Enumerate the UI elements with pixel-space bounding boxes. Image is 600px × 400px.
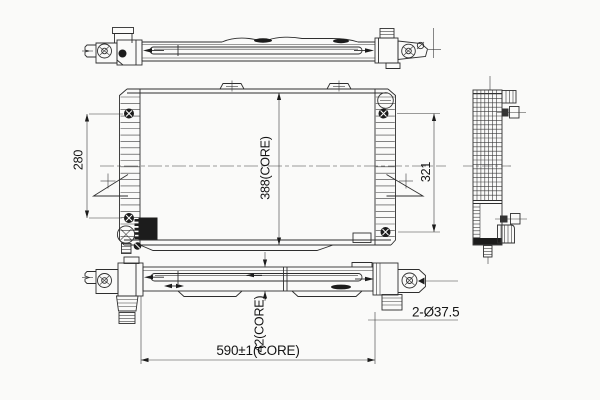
bottom-core-slot bbox=[151, 274, 362, 282]
dim-label-388-core: 388(CORE) bbox=[259, 136, 273, 200]
bottom-left-tank-block bbox=[118, 263, 143, 296]
left-mount-tab bbox=[94, 175, 129, 197]
dim-label-321: 321 bbox=[419, 162, 433, 183]
lower-hose-barb bbox=[117, 296, 139, 311]
bottom-view bbox=[82, 257, 458, 324]
top-seam-mark bbox=[333, 39, 349, 43]
radiator-technical-drawing: 280 388(CORE) 321 42(CORE) 590±1(CORE) 2… bbox=[0, 0, 600, 400]
drawing-canvas: 280 388(CORE) 321 42(CORE) 590±1(CORE) 2… bbox=[0, 0, 600, 400]
inlet-pipe bbox=[502, 91, 516, 104]
dimension-388-core: 388(CORE) bbox=[259, 93, 282, 246]
dim-label-pipe-diameter: 2-Ø37.5 bbox=[412, 305, 459, 320]
dimension-321: 321 bbox=[397, 114, 440, 233]
top-seam-mark bbox=[254, 38, 272, 42]
top-core-slot bbox=[150, 47, 362, 54]
filler-neck-cap bbox=[113, 28, 134, 34]
lower-hose-barb bbox=[382, 295, 402, 311]
right-mount-tab bbox=[387, 175, 424, 197]
top-view bbox=[82, 28, 441, 69]
side-view bbox=[463, 76, 527, 264]
dim-label-280: 280 bbox=[72, 150, 86, 171]
serrated-block bbox=[139, 218, 158, 240]
dim-label-590-core: 590±1(CORE) bbox=[216, 343, 299, 358]
top-sensor-dot bbox=[119, 50, 127, 58]
bottom-seam-mark bbox=[331, 285, 351, 290]
dimension-280: 280 bbox=[72, 114, 124, 218]
